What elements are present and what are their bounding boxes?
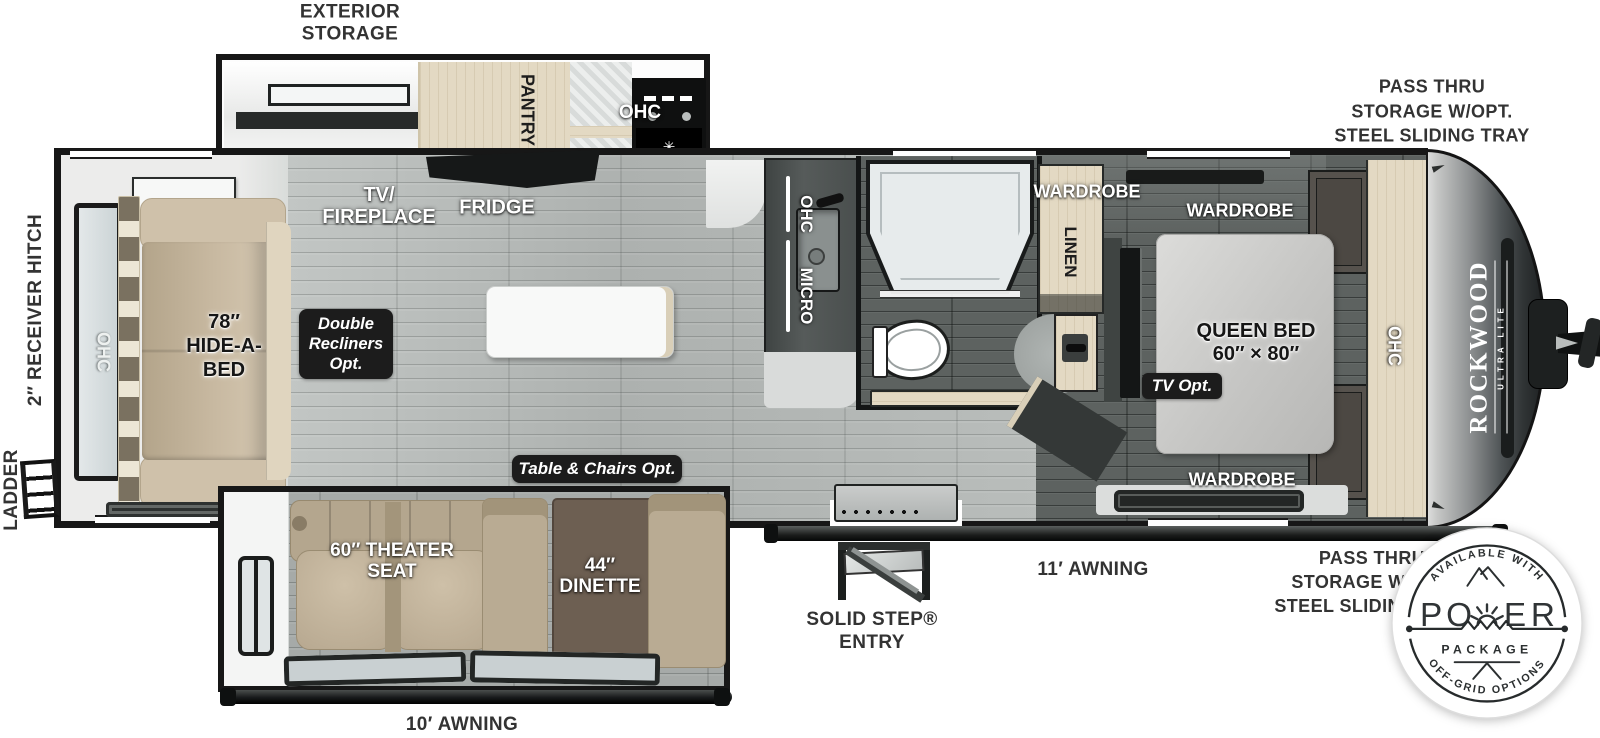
label-line: BED bbox=[186, 358, 262, 382]
badge-table-chairs: Table & Chairs Opt. bbox=[512, 455, 682, 483]
badge-tv-opt: TV Opt. bbox=[1142, 373, 1222, 399]
pantry-cabinet bbox=[418, 62, 572, 162]
label-line: 60″ × 80″ bbox=[1197, 343, 1316, 366]
bedroom-tv bbox=[1120, 248, 1142, 398]
label-hide-a-bed: 78″ HIDE-A- BED bbox=[186, 310, 262, 382]
label-queen-bed: QUEEN BED 60″ × 80″ bbox=[1197, 320, 1316, 366]
label-ohc-kitchen: OHC bbox=[619, 102, 661, 124]
label-wardrobe-bed-bottom: WARDROBE bbox=[1189, 470, 1296, 491]
slide-window bbox=[238, 556, 274, 656]
entry-door-panel bbox=[834, 484, 958, 522]
slide-rug bbox=[284, 652, 467, 687]
shower-inner-ring bbox=[880, 172, 1020, 280]
label-line: 60″ THEATER bbox=[330, 540, 454, 561]
label-linen: LINEN bbox=[1060, 227, 1080, 278]
range-vent-slot bbox=[644, 96, 656, 101]
ceiling-vent bbox=[1126, 170, 1264, 184]
label-line: STORAGE bbox=[300, 23, 400, 45]
label-awning-door-side: 11′ AWNING bbox=[1037, 559, 1148, 581]
ladder-icon bbox=[20, 459, 60, 519]
awning-roller-camp-side bbox=[222, 690, 732, 704]
floorplan-diagram: ROCKWOOD ULTRA LITE ✳ bbox=[0, 0, 1600, 738]
dinette-bench-left bbox=[482, 498, 548, 664]
badge-line: Opt. bbox=[330, 354, 363, 374]
sink-drain bbox=[808, 248, 825, 265]
shower-glass-door bbox=[880, 290, 1020, 298]
label-line: 44″ bbox=[559, 555, 640, 576]
range-knob bbox=[682, 112, 691, 121]
label-line: EXTERIOR bbox=[300, 2, 400, 24]
label-solid-step-entry: SOLID STEP® ENTRY bbox=[806, 608, 937, 654]
rear-floor-mat bbox=[106, 502, 234, 517]
label-line: PASS THRU bbox=[1334, 74, 1529, 99]
label-line: STORAGE W/OPT. bbox=[1334, 99, 1529, 124]
counter-lower bbox=[764, 352, 860, 408]
badge-line: Recliners bbox=[309, 334, 383, 354]
solid-step bbox=[836, 542, 932, 602]
power-package-badge: AVAILABLE WITH P O E R PACKAGE OFF-GRID … bbox=[1389, 525, 1585, 721]
label-line: TV/ bbox=[322, 184, 435, 206]
label-tv-fireplace: TV/ FIREPLACE bbox=[322, 184, 435, 228]
counter-led-strip bbox=[786, 240, 790, 332]
label-line: STEEL SLIDING TRAY bbox=[1334, 123, 1529, 148]
living-slideout bbox=[218, 486, 730, 692]
label-dinette: 44″ DINETTE bbox=[559, 555, 640, 597]
brand-name: ROCKWOOD bbox=[1467, 261, 1492, 434]
toilet-tank bbox=[872, 326, 888, 378]
label-line: SEAT bbox=[330, 561, 454, 582]
label-line: SOLID STEP® bbox=[806, 608, 937, 631]
range-vent-slot bbox=[662, 96, 674, 101]
dinette-bench-right bbox=[648, 494, 726, 668]
brand-logo: ROCKWOOD ULTRA LITE bbox=[1467, 261, 1508, 434]
label-wardrobe-hall: WARDROBE bbox=[1034, 182, 1141, 203]
brand-subtitle: ULTRA LITE bbox=[1495, 261, 1508, 434]
label-pass-thru-top: PASS THRU STORAGE W/OPT. STEEL SLIDING T… bbox=[1334, 74, 1529, 148]
awning-endcap bbox=[714, 688, 730, 706]
label-exterior-storage: EXTERIOR STORAGE bbox=[300, 2, 400, 45]
hide-a-bed-front-edge bbox=[266, 222, 291, 480]
package-text: PACKAGE bbox=[1441, 642, 1532, 656]
label-wardrobe-bed-top: WARDROBE bbox=[1187, 201, 1294, 222]
label-line: QUEEN BED bbox=[1197, 320, 1316, 343]
label-theater-seat: 60″ THEATER SEAT bbox=[330, 540, 454, 582]
label-line: HIDE-A- bbox=[186, 334, 262, 358]
counter-led-strip bbox=[786, 176, 790, 232]
label-pantry: PANTRY bbox=[517, 74, 538, 146]
label-micro-counter: MICRO bbox=[796, 268, 816, 325]
vanity-faucet-icon bbox=[1066, 344, 1086, 352]
label-ohc-counter: OHC bbox=[796, 195, 816, 233]
theater-armrest-dot bbox=[292, 516, 307, 531]
label-receiver-hitch: 2″ RECEIVER HITCH bbox=[25, 214, 47, 406]
island bbox=[486, 286, 674, 358]
glass-shelf bbox=[268, 84, 410, 106]
slide-rug bbox=[470, 650, 661, 685]
door-hinge-dots bbox=[842, 510, 926, 514]
awning-endcap bbox=[764, 524, 778, 543]
window-strip bbox=[70, 149, 212, 159]
tv-shelf bbox=[236, 112, 422, 129]
label-awning-camp-side: 10′ AWNING bbox=[406, 714, 518, 736]
range-vent-slot bbox=[680, 96, 692, 101]
label-ohc-bedroom: OHC bbox=[1384, 326, 1405, 366]
window-strip bbox=[1147, 149, 1290, 159]
rear-cabinet-pillar bbox=[118, 196, 140, 510]
shower-pan bbox=[866, 160, 1034, 294]
badge-double-recliners: Double Recliners Opt. bbox=[299, 309, 393, 379]
label-line: 78″ bbox=[186, 310, 262, 334]
label-fridge: FRIDGE bbox=[459, 197, 535, 220]
label-line: DINETTE bbox=[559, 576, 640, 597]
label-line: FIREPLACE bbox=[322, 206, 435, 228]
badge-line: Double bbox=[318, 314, 374, 334]
label-ohc-rear: OHC bbox=[93, 332, 114, 372]
bedroom-floor-mat bbox=[1114, 490, 1304, 512]
awning-endcap bbox=[220, 688, 236, 706]
label-line: ENTRY bbox=[806, 631, 937, 654]
